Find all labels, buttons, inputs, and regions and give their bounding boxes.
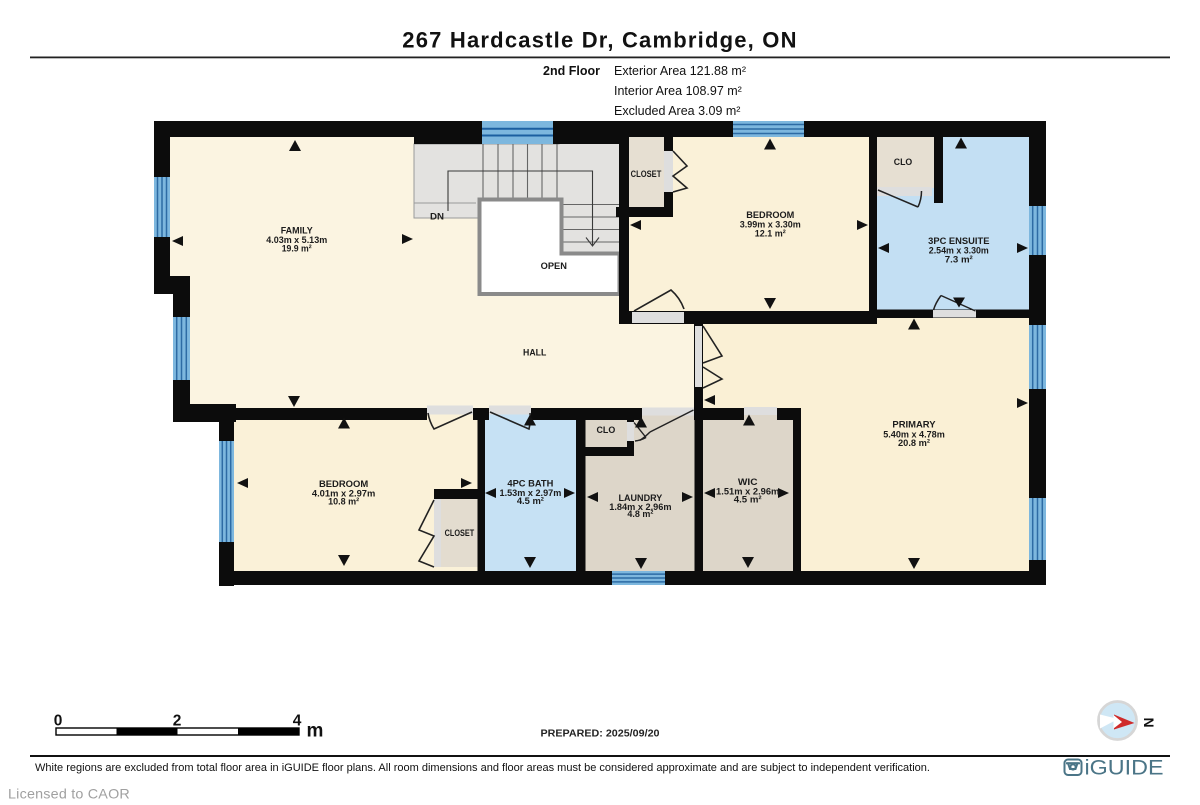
svg-text:CLOSET: CLOSET (445, 528, 475, 538)
svg-text:HALL: HALL (523, 348, 546, 359)
svg-text:2nd Floor: 2nd Floor (543, 64, 600, 78)
svg-text:PREPARED: 2025/09/20: PREPARED: 2025/09/20 (541, 729, 660, 740)
svg-text:4.5 m²: 4.5 m² (517, 496, 544, 507)
svg-text:10.8 m²: 10.8 m² (328, 497, 359, 508)
svg-text:267 Hardcastle Dr, Cambridge,: 267 Hardcastle Dr, Cambridge, ON (402, 28, 797, 53)
svg-text:7.3 m²: 7.3 m² (945, 254, 973, 265)
svg-text:Interior Area 108.97 m²: Interior Area 108.97 m² (614, 84, 742, 98)
svg-text:White regions are excluded fro: White regions are excluded from total fl… (35, 762, 930, 774)
svg-text:0: 0 (54, 713, 63, 730)
svg-text:CLO: CLO (894, 157, 913, 167)
svg-text:4.8 m²: 4.8 m² (627, 509, 653, 520)
svg-text:4: 4 (293, 713, 302, 730)
svg-text:Exterior Area 121.88 m²: Exterior Area 121.88 m² (614, 64, 746, 78)
svg-text:Licensed to CAOR: Licensed to CAOR (8, 786, 130, 802)
svg-text:iGUIDE: iGUIDE (1085, 757, 1164, 780)
svg-text:Excluded Area 3.09 m²: Excluded Area 3.09 m² (614, 104, 740, 118)
svg-text:4.5 m²: 4.5 m² (734, 495, 762, 506)
svg-text:12.1 m²: 12.1 m² (755, 228, 786, 239)
svg-text:DN: DN (430, 212, 444, 222)
svg-text:m: m (307, 721, 324, 742)
svg-text:OPEN: OPEN (541, 261, 567, 272)
svg-text:20.8 m²: 20.8 m² (898, 438, 930, 449)
svg-text:CLOSET: CLOSET (631, 169, 662, 179)
svg-text:2: 2 (173, 713, 182, 730)
svg-text:CLO: CLO (597, 425, 616, 435)
svg-text:19.9 m²: 19.9 m² (282, 243, 312, 254)
svg-text:N: N (1141, 717, 1157, 727)
